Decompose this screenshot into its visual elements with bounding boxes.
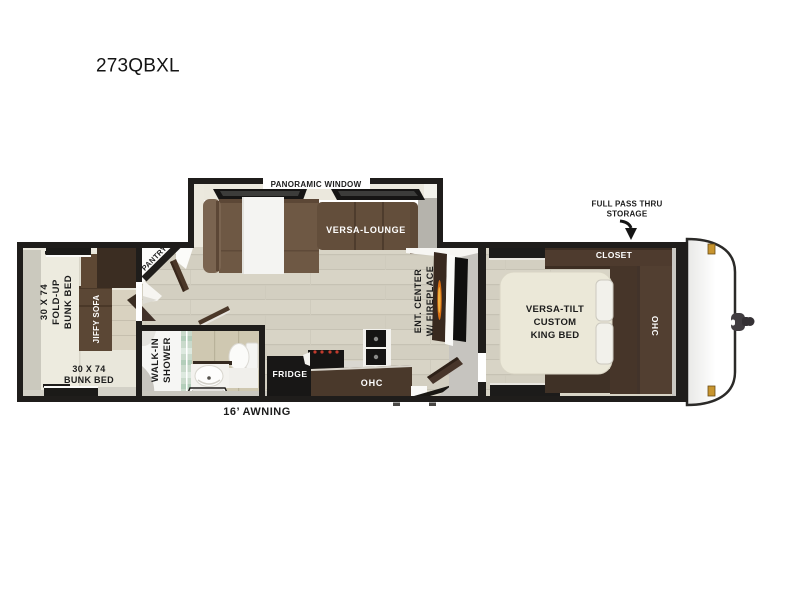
svg-text:OHC: OHC xyxy=(650,316,660,336)
svg-text:SHOWER: SHOWER xyxy=(162,337,173,383)
svg-text:FOLD-UP: FOLD-UP xyxy=(51,279,62,325)
svg-text:JIFFY SOFA: JIFFY SOFA xyxy=(92,295,101,344)
svg-text:OHC: OHC xyxy=(361,378,383,388)
svg-text:ENT. CENTER: ENT. CENTER xyxy=(413,269,423,334)
svg-text:FULL PASS THRU: FULL PASS THRU xyxy=(592,200,663,209)
svg-text:PANORAMIC WINDOW: PANORAMIC WINDOW xyxy=(271,180,362,189)
svg-text:FRIDGE: FRIDGE xyxy=(272,369,307,379)
svg-text:CUSTOM: CUSTOM xyxy=(534,317,577,328)
svg-text:KING BED: KING BED xyxy=(531,330,580,341)
svg-text:W/ FIREPLACE: W/ FIREPLACE xyxy=(425,266,435,337)
svg-text:16’ AWNING: 16’ AWNING xyxy=(223,406,291,418)
svg-text:VERSA-TILT: VERSA-TILT xyxy=(526,304,584,315)
svg-text:30 X 74: 30 X 74 xyxy=(39,284,50,320)
svg-text:VERSA-LOUNGE: VERSA-LOUNGE xyxy=(326,225,406,235)
svg-text:30 X 74: 30 X 74 xyxy=(72,364,105,374)
svg-text:BUNK BED: BUNK BED xyxy=(63,275,74,329)
svg-text:STORAGE: STORAGE xyxy=(607,210,648,219)
svg-text:BUNK BED: BUNK BED xyxy=(64,375,114,385)
svg-text:273QBXL: 273QBXL xyxy=(96,56,180,77)
svg-text:CLOSET: CLOSET xyxy=(596,250,633,260)
svg-text:WALK-IN: WALK-IN xyxy=(150,338,161,382)
